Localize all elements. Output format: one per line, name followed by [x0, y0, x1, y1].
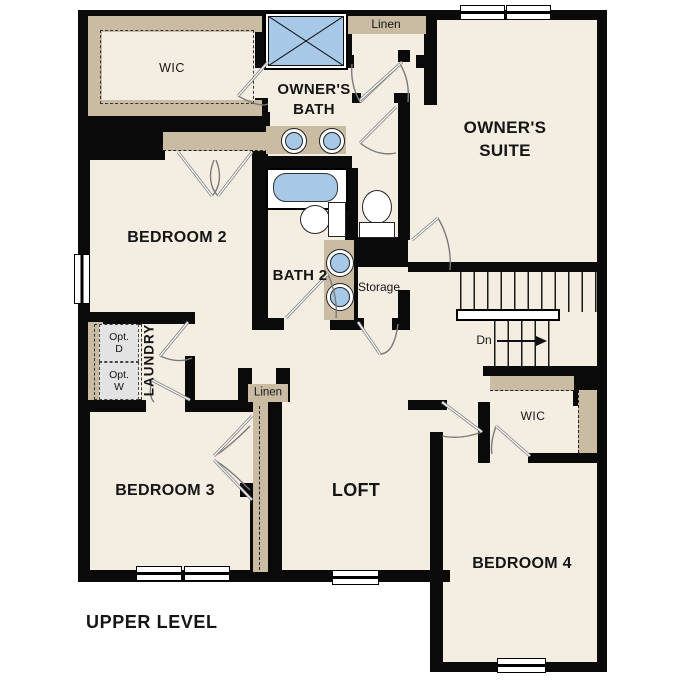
- bedroom2-label: BEDROOM 2: [127, 227, 227, 249]
- wall: [268, 402, 282, 572]
- window: [74, 254, 90, 304]
- wic-bedroom4-door: [490, 418, 534, 458]
- wall: [78, 400, 146, 412]
- stairs-down-label: Dn: [476, 334, 491, 348]
- bathtub-basin: [273, 173, 338, 202]
- owners-bath-label: OWNER'S BATH: [277, 80, 350, 121]
- sink: [319, 128, 345, 154]
- window: [332, 570, 379, 585]
- window: [497, 658, 546, 673]
- shower: [264, 12, 348, 70]
- optional-washer: Opt. W: [99, 362, 139, 400]
- floor-plan: Opt. D Opt. W: [0, 0, 687, 687]
- wic-owner-label: WIC: [159, 61, 185, 75]
- wic-bedroom4-label: WIC: [521, 410, 546, 424]
- window: [460, 5, 505, 20]
- storage-label: Storage: [358, 281, 400, 295]
- wall: [430, 432, 443, 672]
- bedroom2-closet-doors: [176, 150, 254, 202]
- stairs-direction-arrow: [497, 340, 537, 342]
- stairs-lower-run: [494, 321, 558, 366]
- bath2-label: BATH 2: [273, 266, 328, 286]
- loft-label: LOFT: [332, 478, 380, 502]
- closet-shelf: [163, 132, 268, 151]
- wall: [597, 10, 607, 672]
- wic-owner-door: [234, 60, 270, 106]
- sink: [281, 128, 307, 154]
- closet-shelf: [490, 376, 574, 391]
- linen-hall-label: Linen: [254, 386, 282, 399]
- floor-bedroom4: [443, 440, 597, 662]
- owners-suite-label: OWNER'S SUITE: [464, 117, 547, 163]
- window: [184, 566, 230, 581]
- linen-upper-label: Linen: [371, 18, 400, 32]
- bedroom4-label: BEDROOM 4: [472, 553, 572, 575]
- down-arrow-icon: [536, 336, 547, 346]
- wall: [258, 156, 352, 168]
- laundry-label: LAUNDRY: [142, 324, 157, 397]
- stair-railing: [456, 309, 560, 321]
- toilet: [300, 202, 348, 236]
- stairs-upper-run: [460, 272, 597, 312]
- window: [136, 566, 182, 581]
- water-closet-door: [352, 103, 402, 158]
- plan-title: UPPER LEVEL: [86, 612, 218, 633]
- bedroom3-label: BEDROOM 3: [115, 480, 215, 502]
- owners-bath-suite-door: [352, 58, 412, 104]
- owners-suite-entry-door: [408, 214, 454, 272]
- storage-door: [354, 320, 402, 364]
- window: [506, 5, 551, 20]
- wall: [252, 132, 268, 322]
- toilet: [358, 190, 396, 238]
- closet-rod-dashed: [259, 406, 261, 570]
- wall: [352, 237, 408, 267]
- closet-shelf: [578, 390, 597, 453]
- bedroom4-door: [438, 398, 488, 438]
- wall: [528, 453, 607, 463]
- optional-dryer: Opt. D: [99, 324, 139, 362]
